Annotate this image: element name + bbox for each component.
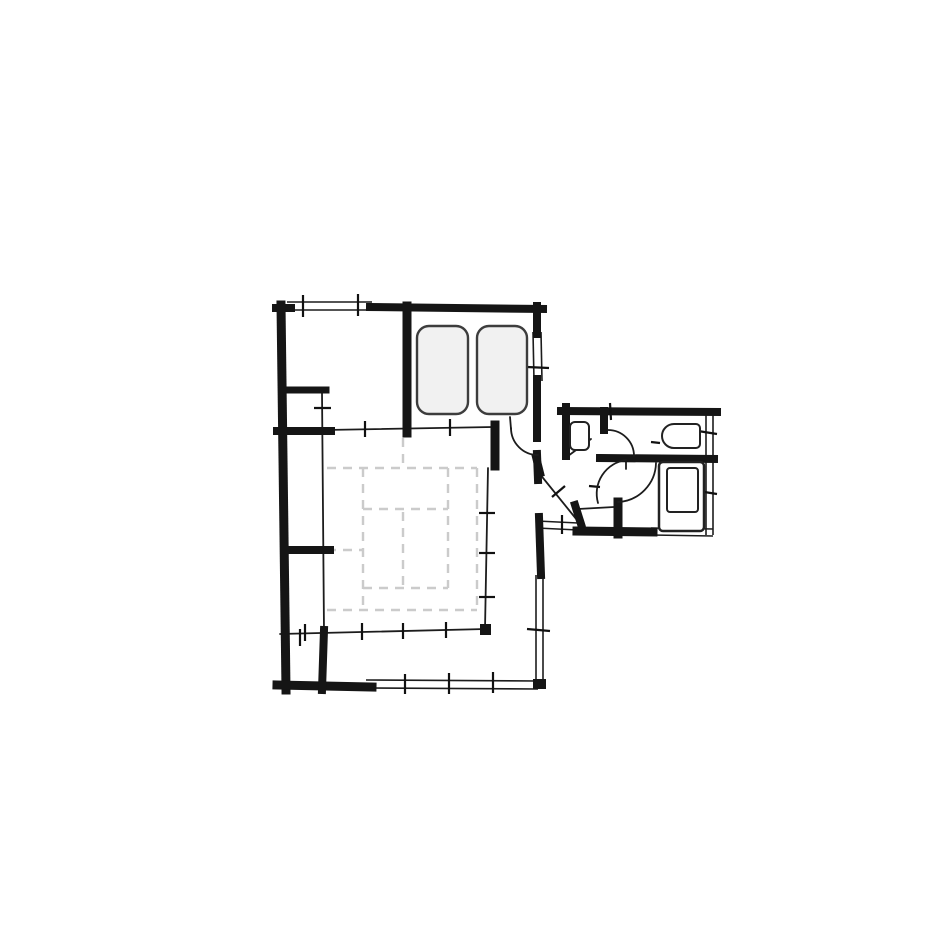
tick-marks-segment	[610, 403, 611, 420]
window-lines-segment	[533, 332, 534, 381]
toilet-door-arc	[608, 430, 634, 456]
floorplan-page	[0, 0, 940, 940]
thick-walls-segment	[575, 505, 581, 524]
tick-marks-segment	[589, 486, 600, 487]
wall-node	[480, 624, 491, 635]
bath-door-arc-1	[597, 460, 626, 503]
tick-marks-segment	[527, 629, 550, 631]
window-lines-segment	[541, 332, 542, 381]
thin-walls-segment	[280, 629, 486, 634]
window-lines-segment	[366, 680, 538, 681]
tick-marks-segment	[651, 442, 660, 443]
thick-walls-segment	[536, 457, 540, 473]
thin-walls-segment	[485, 468, 488, 629]
floorplan-svg	[0, 0, 940, 940]
thick-walls-segment	[370, 307, 543, 309]
bed-right	[477, 326, 527, 414]
toilet	[662, 424, 700, 448]
bath-door-arc-2	[618, 463, 656, 502]
thick-walls-segment	[600, 458, 714, 459]
window-lines-segment	[366, 688, 538, 689]
thick-walls-segment	[281, 305, 286, 690]
tick-marks-segment	[527, 367, 549, 368]
bed-left	[417, 326, 468, 414]
tatami-grid	[327, 438, 477, 610]
thin-walls-segment	[578, 507, 614, 509]
thick-walls-segment	[322, 630, 324, 690]
washbasin	[570, 422, 589, 450]
thick-walls-segment	[561, 411, 717, 412]
thin-walls-segment	[539, 473, 577, 520]
thick-walls-segment	[539, 517, 541, 575]
window-lines-segment	[651, 535, 713, 536]
wall-node	[533, 679, 546, 689]
